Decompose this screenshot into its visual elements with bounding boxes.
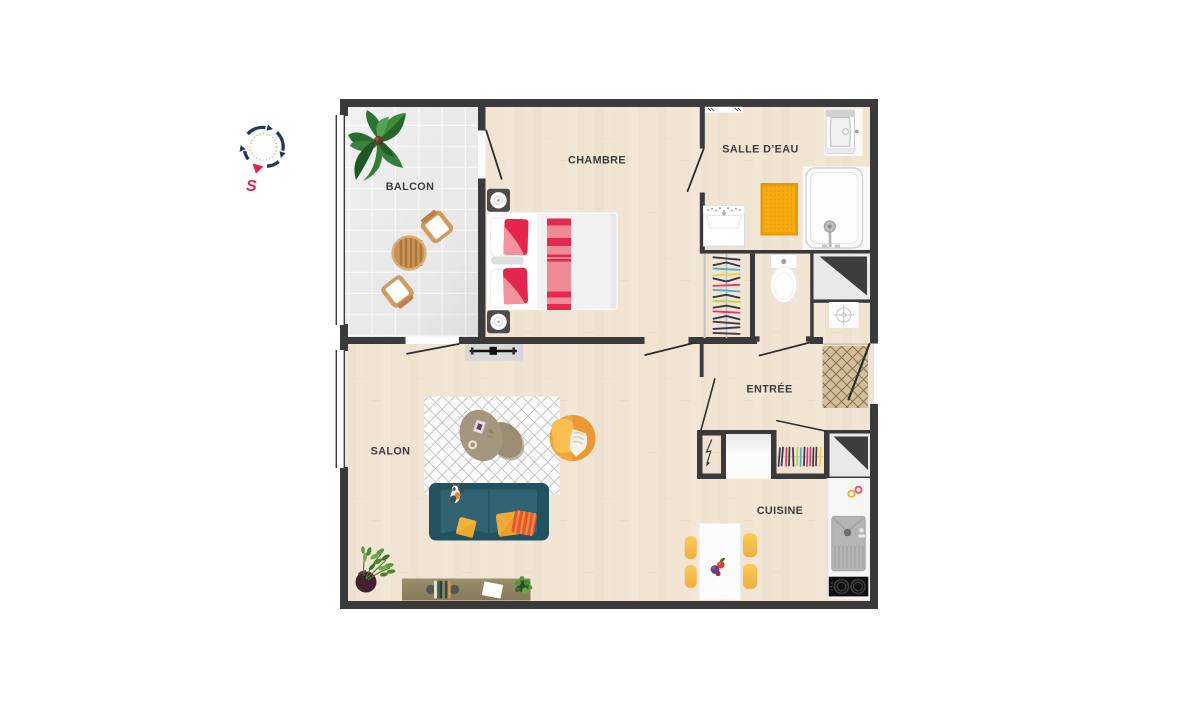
- svg-text:CUISINE: CUISINE: [757, 505, 804, 517]
- svg-text:BALCON: BALCON: [386, 181, 435, 193]
- svg-text:CHAMBRE: CHAMBRE: [568, 155, 626, 167]
- svg-text:ENTRÉE: ENTRÉE: [746, 383, 792, 396]
- svg-text:SALLE D’EAU: SALLE D’EAU: [722, 144, 798, 156]
- svg-text:S: S: [246, 178, 257, 195]
- svg-text:SALON: SALON: [371, 446, 411, 458]
